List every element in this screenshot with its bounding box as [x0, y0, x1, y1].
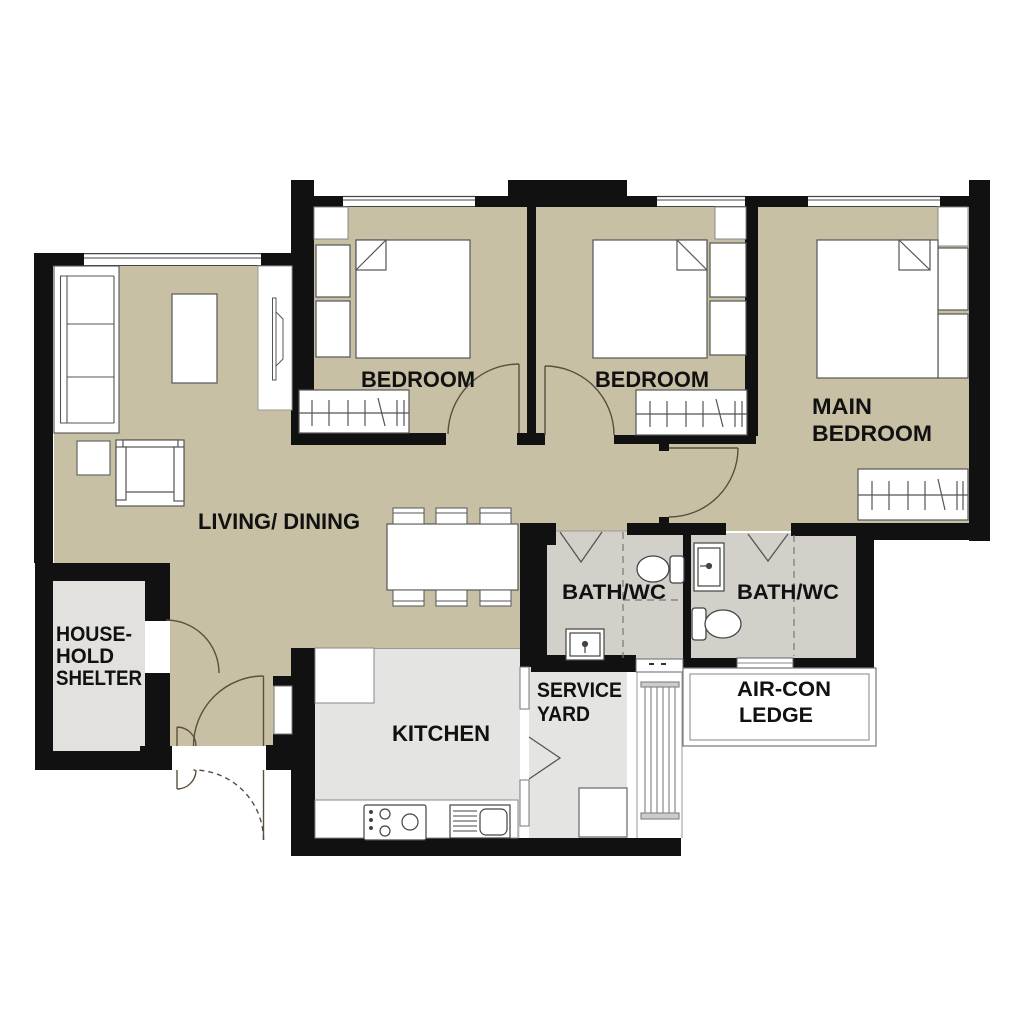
svg-text:AIR-CON: AIR-CON	[737, 678, 831, 701]
svg-text:HOLD: HOLD	[56, 645, 114, 668]
svg-text:BATH/WC: BATH/WC	[562, 581, 666, 604]
svg-text:BATH/WC: BATH/WC	[737, 581, 839, 604]
svg-text:BEDROOM: BEDROOM	[595, 367, 709, 392]
svg-text:BEDROOM: BEDROOM	[361, 367, 475, 392]
svg-text:LEDGE: LEDGE	[739, 704, 813, 727]
svg-text:YARD: YARD	[537, 703, 590, 726]
svg-text:SERVICE: SERVICE	[537, 679, 622, 702]
svg-text:KITCHEN: KITCHEN	[392, 721, 490, 746]
svg-text:MAIN: MAIN	[812, 394, 872, 419]
svg-text:HOUSE-: HOUSE-	[56, 623, 132, 646]
svg-text:LIVING/ DINING: LIVING/ DINING	[198, 509, 360, 534]
svg-text:BEDROOM: BEDROOM	[812, 421, 932, 446]
svg-text:SHELTER: SHELTER	[56, 667, 142, 690]
